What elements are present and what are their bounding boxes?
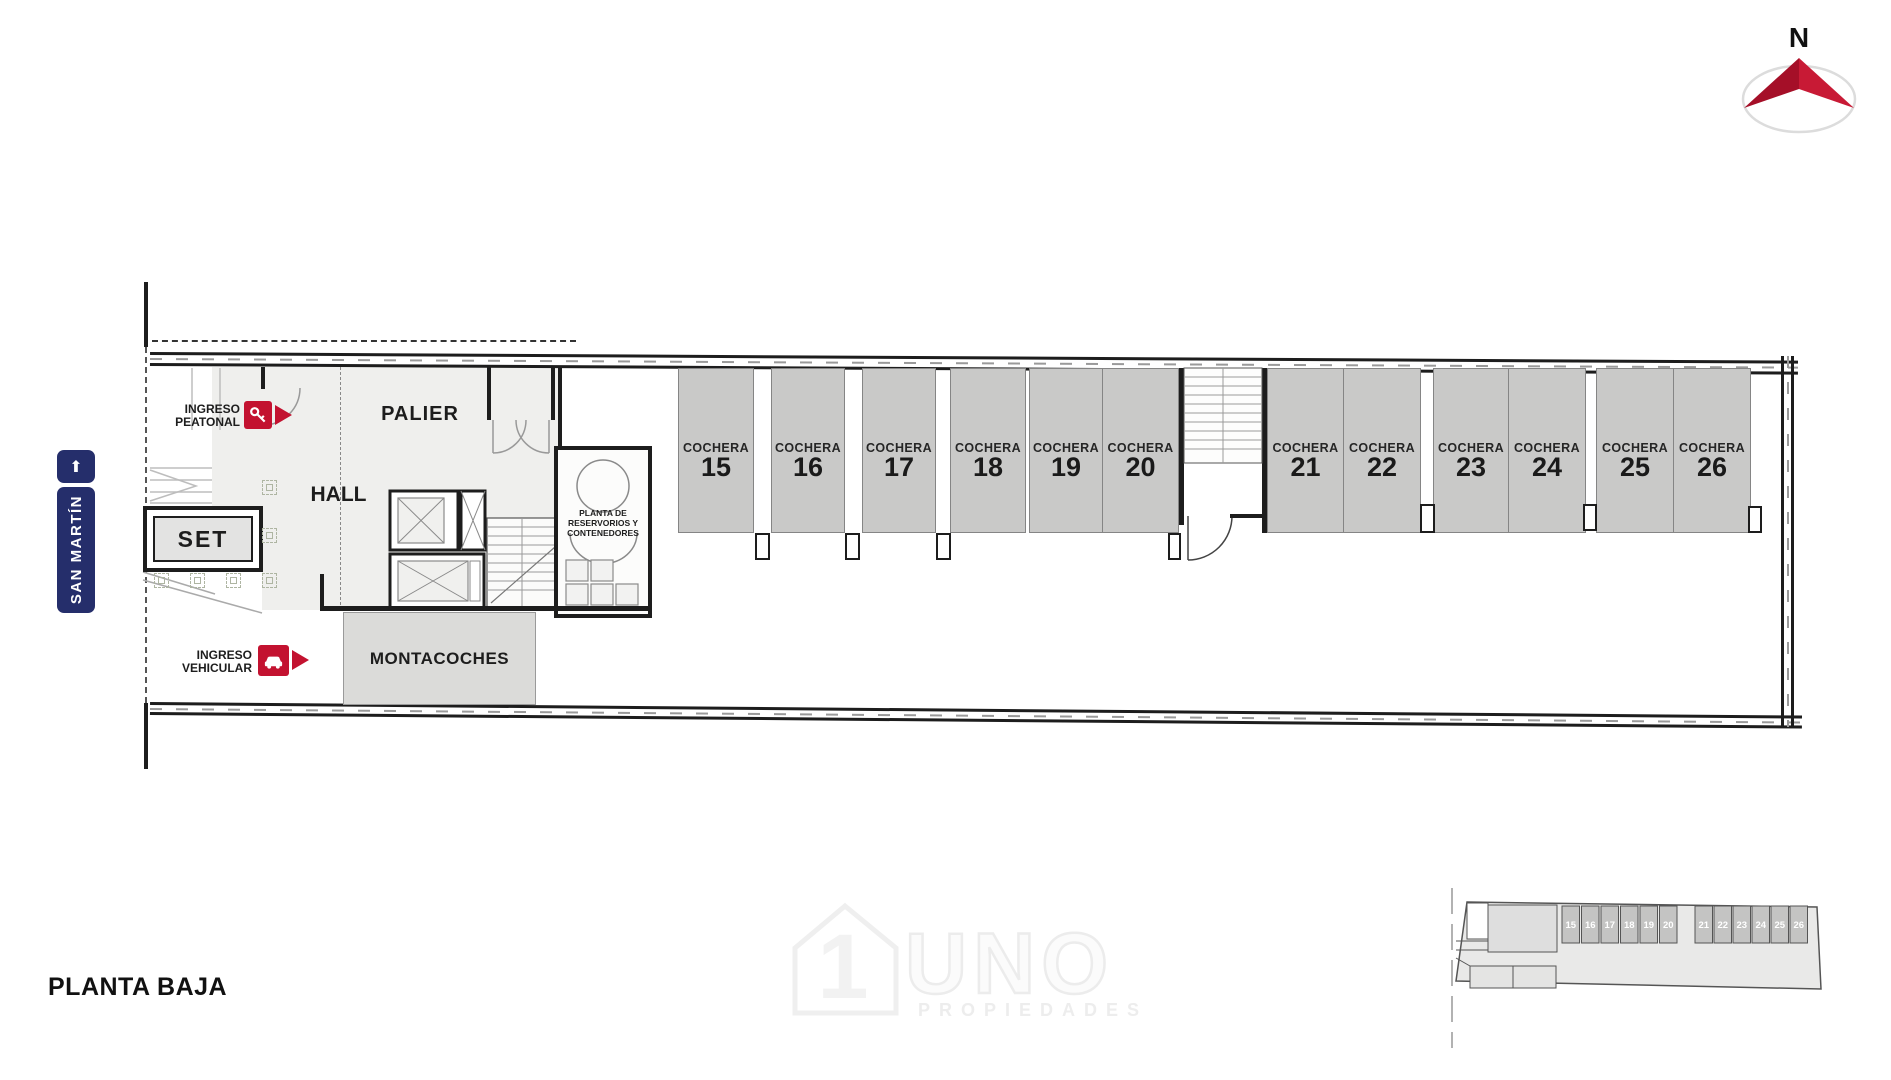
- parking-stall-25: COCHERA 25: [1596, 368, 1674, 533]
- svg-text:15: 15: [1566, 920, 1577, 931]
- stall-number: 24: [1532, 455, 1562, 481]
- reservorios-label-3: CONTENEDORES: [560, 528, 646, 538]
- set-room: SET: [143, 506, 263, 572]
- palier-label: PALIER: [365, 403, 475, 426]
- stall-number: 20: [1125, 455, 1155, 481]
- reservorios-label-2: RESERVORIOS Y: [560, 518, 646, 528]
- parking-stall-16: COCHERA 16: [771, 368, 845, 533]
- vehicular-entrance-label: INGRESO VEHICULAR: [168, 649, 252, 676]
- stall-number: 21: [1290, 455, 1320, 481]
- parking-stall-24: COCHERA 24: [1508, 368, 1586, 533]
- parking-stall-17: COCHERA 17: [862, 368, 936, 533]
- stall-number: 19: [1051, 455, 1081, 481]
- elevator-shafts: [390, 491, 485, 608]
- planter-icon: [226, 573, 241, 588]
- hall-label: HALL: [296, 483, 381, 507]
- parking-stall-26: COCHERA 26: [1673, 368, 1751, 533]
- garage-stairwell: [1179, 368, 1267, 560]
- key-icon: [244, 401, 272, 429]
- column: [1420, 504, 1435, 533]
- planter-icon: [154, 573, 169, 588]
- stall-number: 18: [973, 455, 1003, 481]
- planter-icon: [262, 573, 277, 588]
- planter-icon: [262, 528, 277, 543]
- car-icon: [258, 645, 289, 676]
- planter-icon: [262, 480, 277, 495]
- entry-steps: [150, 368, 220, 503]
- ingreso-text: INGRESO: [158, 403, 240, 416]
- stall-number: 15: [701, 455, 731, 481]
- stall-number: 17: [884, 455, 914, 481]
- palier-doors: [487, 367, 555, 453]
- montacoches-wall: [320, 606, 650, 611]
- walkway-wall: [261, 367, 265, 389]
- svg-text:16: 16: [1585, 920, 1596, 931]
- stall-number: 22: [1367, 455, 1397, 481]
- set-label: SET: [153, 516, 253, 562]
- palier-stairs: [487, 518, 557, 607]
- montacoches-label: MONTACOCHES: [370, 649, 509, 669]
- svg-text:24: 24: [1756, 920, 1767, 931]
- stall-number: 26: [1697, 455, 1727, 481]
- svg-text:25: 25: [1775, 920, 1786, 931]
- parking-stall-22: COCHERA 22: [1343, 368, 1421, 533]
- column: [1583, 504, 1597, 531]
- svg-text:18: 18: [1624, 920, 1635, 931]
- parking-stall-15: COCHERA 15: [678, 368, 754, 533]
- parking-stall-20: COCHERA 20: [1102, 368, 1179, 533]
- montacoches-wall-stub: [320, 574, 324, 611]
- pedestrian-direction-arrow: [275, 405, 292, 425]
- svg-text:21: 21: [1699, 920, 1710, 931]
- ingreso-text: INGRESO: [168, 649, 252, 662]
- column: [1748, 506, 1762, 533]
- column: [845, 533, 860, 560]
- parking-stall-21: COCHERA 21: [1267, 368, 1344, 533]
- page-title: PLANTA BAJA: [48, 973, 227, 1002]
- reservorios-label-1: PLANTA DE: [560, 508, 646, 518]
- reservorios-room: [556, 367, 650, 616]
- svg-text:26: 26: [1794, 920, 1805, 931]
- minimap: 15 16 17 18 19 20 21 22 23 24 25 26: [1440, 880, 1891, 1060]
- floor-plan-canvas: 1 UNO PROPIEDADES N ⬆ SAN MARTÍN: [0, 0, 1891, 1080]
- stall-number: 25: [1620, 455, 1650, 481]
- parking-stall-19: COCHERA 19: [1029, 368, 1103, 533]
- column: [1168, 533, 1181, 560]
- column: [936, 533, 951, 560]
- parking-stall-18: COCHERA 18: [950, 368, 1026, 533]
- vehicular-text: VEHICULAR: [168, 662, 252, 675]
- column: [755, 533, 770, 560]
- svg-text:23: 23: [1737, 920, 1748, 931]
- svg-text:19: 19: [1644, 920, 1655, 931]
- parking-stall-23: COCHERA 23: [1433, 368, 1509, 533]
- pedestrian-entrance-label: INGRESO PEATONAL: [158, 403, 240, 430]
- vehicular-direction-arrow: [292, 650, 309, 670]
- svg-text:17: 17: [1605, 920, 1616, 931]
- svg-text:20: 20: [1663, 920, 1674, 931]
- stall-number: 16: [793, 455, 823, 481]
- peatonal-text: PEATONAL: [158, 416, 240, 429]
- planter-icon: [190, 573, 205, 588]
- svg-text:22: 22: [1718, 920, 1729, 931]
- montacoches-room: MONTACOCHES: [343, 612, 536, 705]
- stall-number: 23: [1456, 455, 1486, 481]
